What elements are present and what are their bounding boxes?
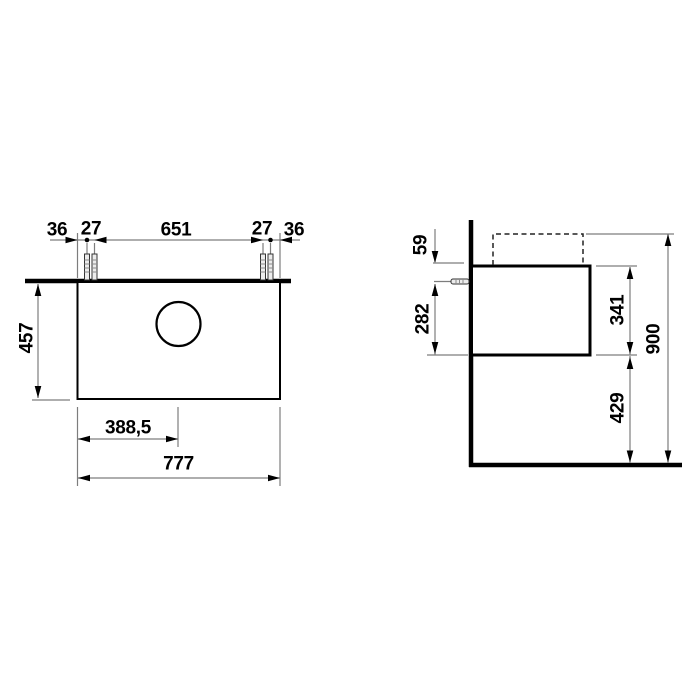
side-view: 59 282 341 429 — [411, 220, 683, 467]
mounting-bolt-icon — [92, 243, 97, 280]
technical-drawing-canvas: 36 27 651 27 36 457 388,5 777 — [0, 0, 700, 700]
wall-anchor-screw-icon — [434, 279, 469, 284]
dim-total-mount-height: 900 — [644, 234, 672, 463]
dim-anchor-to-bottom: 282 — [413, 284, 469, 355]
dim-label-total-mount-height: 900 — [644, 324, 665, 355]
dim-label-wall-offset-right: 36 — [284, 220, 305, 241]
dim-label-depth: 457 — [17, 323, 38, 354]
plan-view: 36 27 651 27 36 457 388,5 777 — [17, 219, 305, 487]
dim-label-body-height: 341 — [608, 294, 629, 326]
side-cabinet-outline — [472, 266, 591, 355]
dim-label-top-to-anchor: 59 — [411, 235, 432, 256]
dim-label-bolt-gap-left: 27 — [81, 219, 102, 240]
mounting-bolt-icon — [261, 243, 266, 280]
dim-depth: 457 — [17, 284, 71, 400]
mounting-bolt-icon — [268, 243, 273, 280]
dim-top-to-anchor: 59 — [411, 229, 465, 263]
basin-dashed-outline — [493, 234, 583, 265]
dim-label-anchor-to-bottom: 282 — [413, 304, 434, 335]
dim-label-floor-clearance: 429 — [608, 393, 629, 424]
dim-body-height: 341 — [608, 267, 634, 355]
dim-label-bolt-gap-right: 27 — [252, 219, 273, 240]
dim-bottom-group: 388,5 777 — [78, 407, 281, 486]
dim-label-total-width: 777 — [163, 454, 194, 475]
dim-label-wall-offset-left: 36 — [47, 220, 68, 241]
dim-label-bolt-span: 651 — [161, 220, 193, 241]
dim-label-hole-center: 388,5 — [105, 418, 152, 439]
dim-floor-clearance: 429 — [608, 356, 634, 463]
vanity-dimension-drawing: 36 27 651 27 36 457 388,5 777 — [0, 0, 700, 700]
mounting-bolt-icon — [85, 243, 90, 280]
basin-hole-circle — [157, 302, 201, 346]
